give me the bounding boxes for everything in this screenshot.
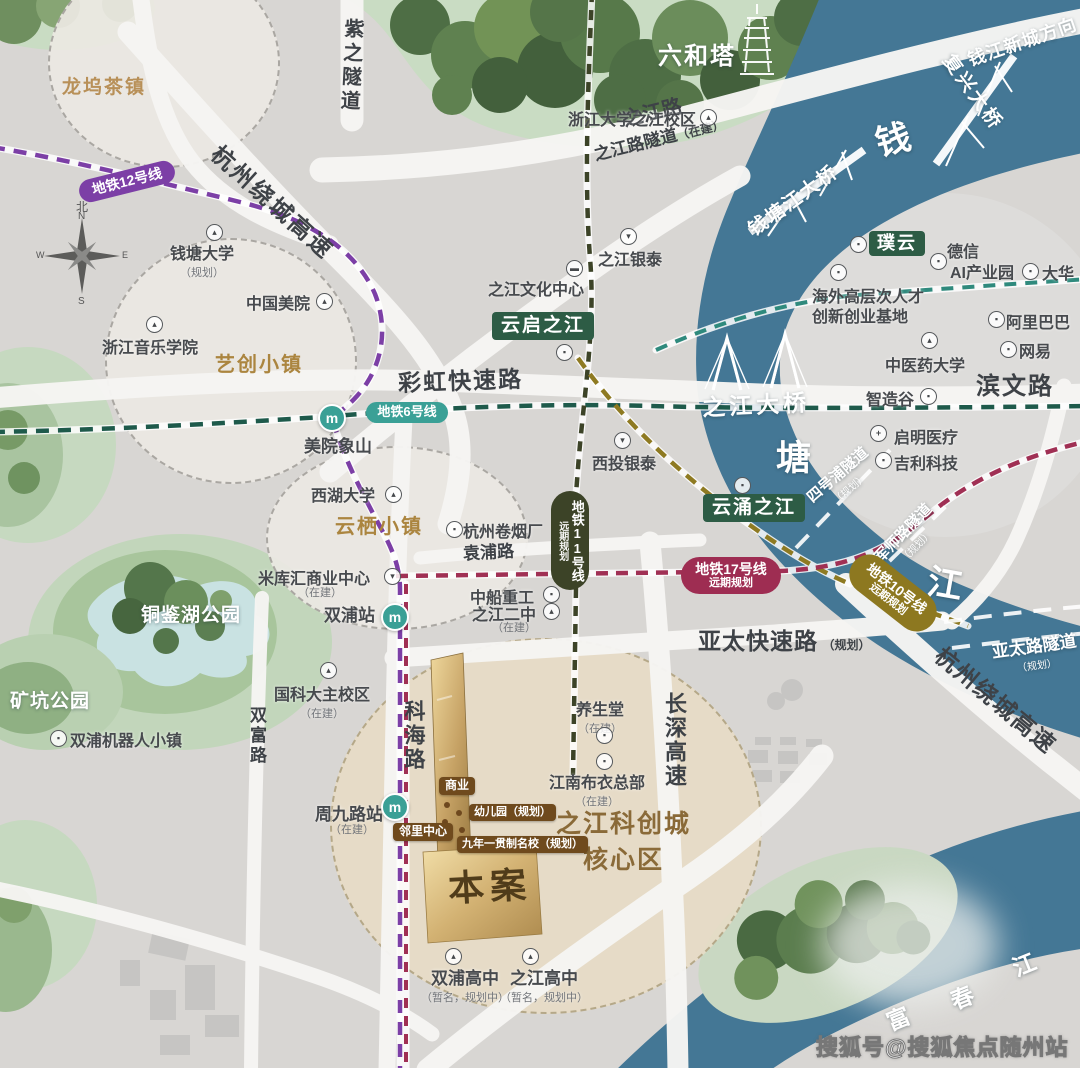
poi-zhongguo-meiyuan: 中国美院 (246, 290, 310, 314)
school-icon: ▴ (146, 316, 163, 333)
road-label-shuangfu: 双富路 (244, 706, 269, 766)
building-icon: ▪ (930, 253, 947, 270)
road-shuangfu (251, 598, 262, 1068)
compass-s: S (78, 296, 85, 307)
poi-yinyue: 浙江音乐学院 (102, 334, 198, 358)
poi-juanyanchang: 杭州卷烟厂 (463, 518, 543, 542)
building-icon: ▪ (875, 452, 892, 469)
compass-w: W (36, 250, 45, 260)
poi-jiangnanbuyi: 江南布衣总部 （在建） (549, 769, 645, 809)
hospital-icon: + (870, 425, 887, 442)
poi-dexin-ai: AI产业园 (950, 259, 1014, 283)
poi-zhizaogu: 智造谷 (866, 386, 914, 410)
building-icon: ▪ (830, 264, 847, 281)
road-label-changshen: 长深高速 (658, 692, 690, 788)
station-label-zhoujiulu-sub: （在建） (330, 821, 374, 837)
road-label-binwen: 滨文路 (976, 366, 1054, 401)
compass-star (44, 218, 120, 294)
poi-haiwai-2: 创新创业基地 (812, 303, 908, 327)
poi-robot-town: 双浦机器人小镇 (70, 727, 182, 751)
zone-label-longwu: 龙坞茶镇 (62, 72, 146, 99)
poi-zhijiang-hs: 之江高中 （暂名，规划中） (500, 964, 588, 1005)
building-icon: ▪ (850, 236, 867, 253)
building-icon: ▪ (1022, 263, 1039, 280)
poi-qiantang-univ: 钱塘大学 （规划） (170, 240, 234, 280)
school-icon: ▴ (445, 948, 462, 965)
zone-label-yichuang: 艺创小镇 (215, 348, 303, 377)
school-icon: ▴ (320, 662, 337, 679)
poi-mikuhui-sub: （在建） (298, 584, 342, 600)
badge-yunqi-zhijiang: 云启之江 (492, 312, 594, 340)
road-caihong-binwen (0, 380, 1080, 398)
school-icon: ▴ (921, 332, 938, 349)
badge-mingxiao: 九年一贯制名校（规划） (457, 836, 588, 853)
road-label-kehai: 科海路 (398, 700, 428, 772)
school-icon: ▴ (700, 109, 717, 126)
building-icon: ▪ (50, 730, 67, 747)
poi-shuangpu-hs: 双浦高中 （暂名，规划中） (421, 964, 509, 1005)
mall-icon: ▾ (384, 568, 401, 585)
badge-yunyong-zhijiang: 云涌之江 (703, 494, 805, 522)
compass-n: N (78, 211, 85, 222)
building-icon: ▪ (988, 311, 1005, 328)
poi-zhijiang-yintai: 之江银泰 (598, 246, 662, 270)
metro-station-icon: m (381, 793, 409, 821)
metro-station-icon: m (318, 404, 346, 432)
zhijiang-bridge-icon (705, 334, 807, 390)
poi-zhongyiyao: 中医药大学 (885, 352, 965, 376)
building-icon: ▪ (920, 388, 937, 405)
mall-icon: ▾ (614, 432, 631, 449)
poi-xihu-univ: 西湖大学 (311, 482, 375, 506)
poi-alibaba: 阿里巴巴 (1006, 309, 1070, 333)
road-label-yatai: 亚太快速路 （规划） (698, 622, 870, 656)
building-icon: ▪ (734, 477, 751, 494)
metro-badge-line6: 地铁6号线 (366, 402, 448, 423)
building-icon: ▪ (543, 586, 560, 603)
zone-label-yunqi: 云栖小镇 (335, 510, 423, 539)
project-name: 本案 (437, 855, 544, 912)
station-label-meiyuanxiangshan: 美院象山 (304, 432, 372, 457)
river-char-tang: 塘 (776, 430, 811, 481)
mall-icon: ▾ (620, 228, 637, 245)
building-icon: ▪ (596, 753, 613, 770)
poi-jili: 吉利科技 (894, 450, 958, 474)
location-map: 紫之隧道 之江路 之江路隧道（在建） 六和塔 浙江大学之江校区 ▴ 钱江新城方向… (0, 0, 1080, 1068)
badge-linli: 邻里中心 (393, 823, 453, 841)
metro-badge-line11: 远期规划 地铁11号线 (551, 491, 589, 590)
building-icon: ▪ (556, 344, 573, 361)
metro-station-icon: m (381, 603, 409, 631)
road-label-zizhi-tunnel: 紫之隧道 (334, 17, 368, 114)
metro-badge-line17: 地铁17号线 远期规划 (681, 557, 781, 594)
building-icon: ▪ (596, 727, 613, 744)
building-icon: ▪ (446, 521, 463, 538)
compass-e: E (122, 250, 128, 260)
poi-wangyi: 网易 (1019, 338, 1051, 362)
school-icon: ▴ (522, 948, 539, 965)
poi-wenhua: 之江文化中心 (488, 276, 584, 300)
museum-icon: ▬ (566, 260, 583, 277)
building-icon: ▪ (1000, 341, 1017, 358)
school-icon: ▴ (385, 486, 402, 503)
school-icon: ▴ (206, 224, 223, 241)
station-label-shuangpu: 双浦站 (324, 601, 375, 626)
badge-puyun: 璞云 (869, 231, 925, 256)
bridge-label-zhijiang: 之江大桥 (701, 383, 811, 423)
poi-dahua: 大华 (1042, 260, 1074, 284)
pagoda-icon (740, 4, 774, 74)
poi-guokeda: 国科大主校区 （在建） (274, 681, 370, 721)
school-icon: ▴ (543, 603, 560, 620)
poi-xitou-yintai: 西投银泰 (592, 450, 656, 474)
poi-erzhong-sub: （在建） (492, 619, 536, 635)
badge-shangye: 商业 (439, 777, 475, 795)
poi-tongjianhu: 铜鉴湖公园 (141, 600, 241, 627)
poi-qiming: 启明医疗 (894, 424, 958, 448)
poi-kuangkeng: 矿坑公园 (10, 686, 90, 713)
poi-zheda-campus: 浙江大学之江校区 (568, 106, 696, 130)
school-icon: ▴ (316, 293, 333, 310)
poi-liuheta: 六和塔 (658, 36, 736, 71)
watermark: 搜狐号@搜狐焦点随州站 (816, 1030, 1068, 1062)
badge-youeryuan: 幼儿园（规划） (469, 804, 556, 821)
road-label-caihong: 彩虹快速路 (397, 360, 523, 398)
